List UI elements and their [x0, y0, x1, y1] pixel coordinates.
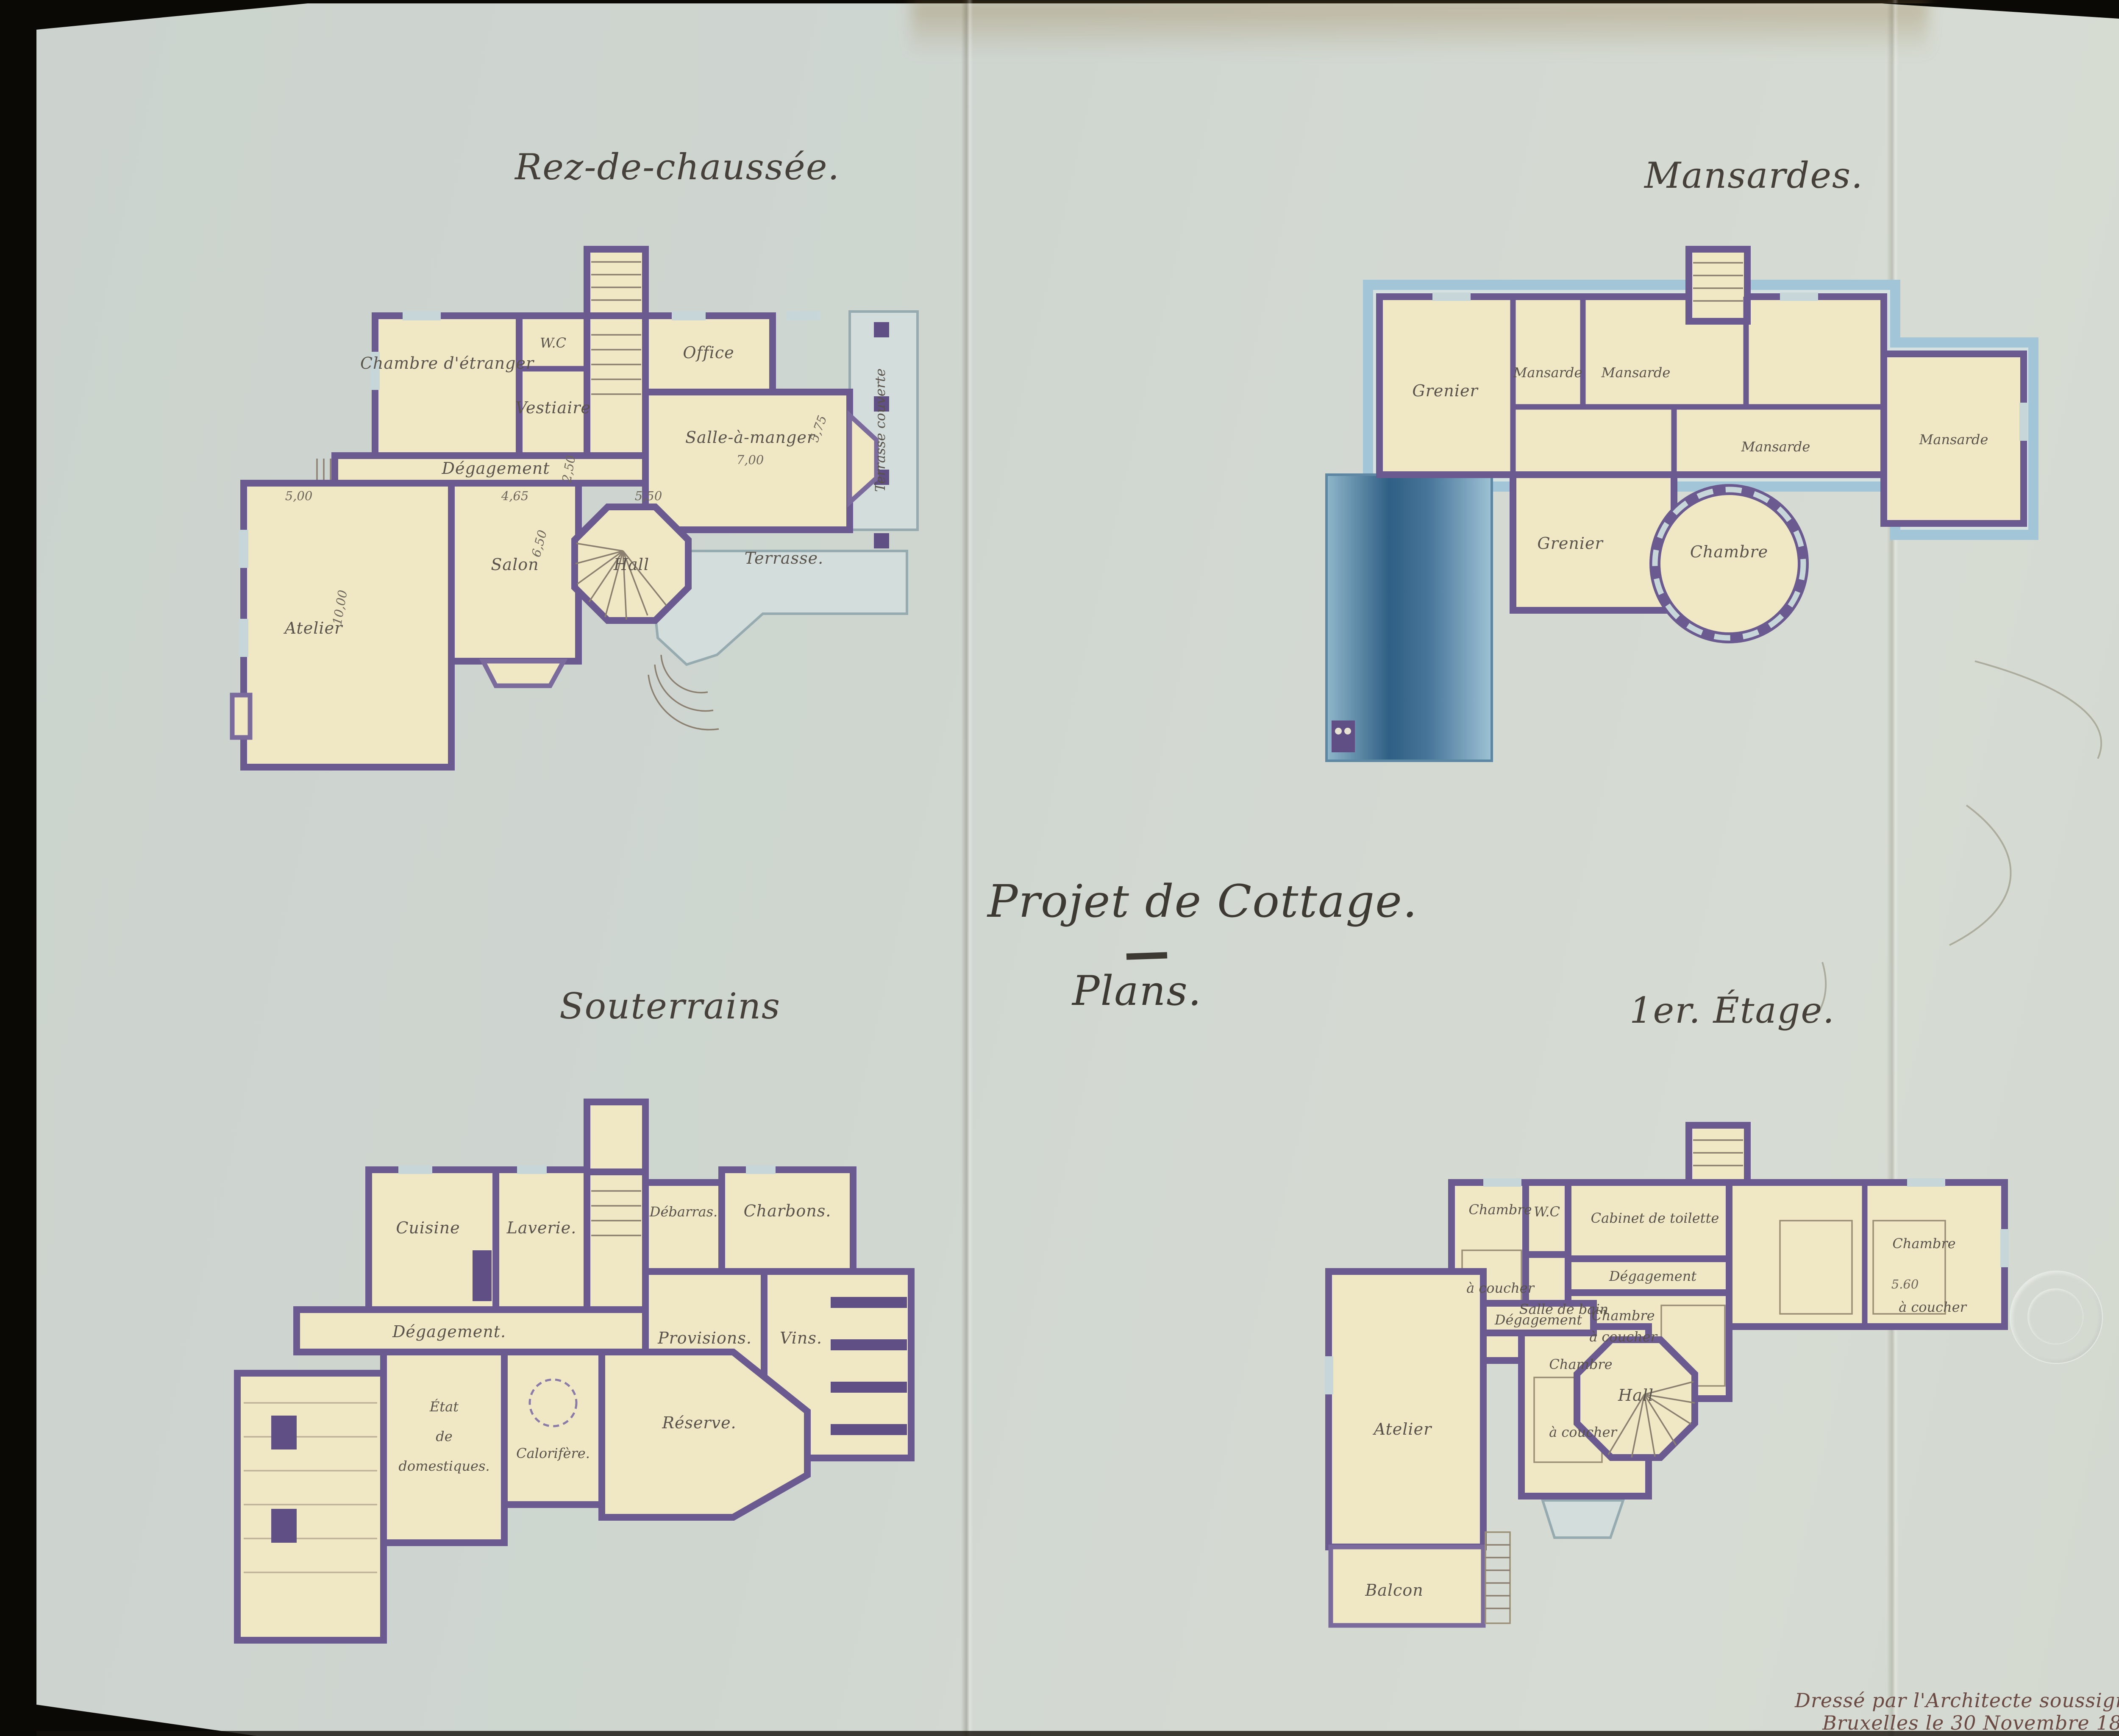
label-hall: Hall	[613, 555, 649, 574]
label-wc-etage: W.C	[1534, 1204, 1560, 1220]
label-chambre-d1b: à coucher	[1589, 1329, 1658, 1345]
label-degagement-b: Dégagement	[1494, 1312, 1582, 1328]
label-chambre-tour: Chambre	[1690, 542, 1768, 561]
sout-stair-tower	[587, 1102, 645, 1172]
label-balcon: Balcon	[1365, 1581, 1423, 1600]
label-terrasse-couverte: Terrasse couverte	[872, 368, 888, 492]
page-title: Projet de Cottage.	[987, 875, 1418, 927]
plan-title-rez-de-chaussee: Rez-de-chaussée.	[515, 146, 840, 188]
label-reserve: Réserve.	[662, 1413, 736, 1432]
rez-stairwell	[587, 316, 645, 456]
rez-atelier-bay	[232, 695, 250, 737]
label-etat-2: de	[436, 1428, 452, 1444]
label-debarras: Débarras.	[649, 1204, 717, 1220]
label-grenier-1: Grenier	[1412, 381, 1479, 400]
label-chambre-g: Chambre	[1468, 1202, 1532, 1218]
label-chambre-g2: à coucher	[1466, 1280, 1535, 1296]
plan-title-premier-etage: 1er. Étage.	[1630, 990, 1835, 1031]
room-charbons	[722, 1170, 853, 1271]
label-cabinet-toilette: Cabinet de toilette	[1591, 1210, 1719, 1226]
label-vins: Vins.	[780, 1329, 822, 1347]
mansardes-stair-tower	[1689, 249, 1747, 321]
dim-hall: 5,50	[635, 489, 662, 503]
label-charbons: Charbons.	[744, 1202, 831, 1220]
label-mansarde-3: Mansarde	[1741, 439, 1810, 455]
rez-salon-bay	[483, 661, 564, 686]
label-chambre-etranger: Chambre d'étranger	[360, 354, 535, 373]
plan-souterrains-drawing: Cuisine Laverie. Débarras. Charbons. Dég…	[220, 1085, 949, 1670]
sout-left-cellar	[237, 1373, 384, 1640]
rez-stair-tower	[587, 249, 645, 319]
room-calorifere	[504, 1352, 602, 1505]
label-chambre-c: Chambre	[1549, 1356, 1612, 1372]
dim-salle: 7,00	[737, 453, 764, 467]
label-mansarde-2: Mansarde	[1601, 364, 1671, 381]
label-atelier-etage: Atelier	[1373, 1420, 1432, 1438]
label-salon: Salon	[491, 555, 539, 574]
plan-title-souterrains: Souterrains	[559, 985, 781, 1027]
room-etat-domestiques	[384, 1352, 504, 1543]
label-mansarde-1: Mansarde	[1513, 364, 1582, 381]
signature-line-1: Dressé par l'Architecte soussigné	[1795, 1689, 2119, 1712]
dim-atelier-w: 5,00	[285, 489, 313, 503]
mansardes-lower-roof	[1326, 475, 1492, 761]
label-etat-3: domestiques.	[398, 1458, 489, 1474]
plan-mansardes-drawing: Grenier Mansarde Mansarde Mansarde Mansa…	[1310, 237, 2047, 780]
room-atelier	[244, 483, 451, 767]
page-subtitle: Plans.	[1072, 967, 1202, 1015]
label-cuisine: Cuisine	[396, 1219, 460, 1237]
room-chambre-etranger	[375, 316, 519, 456]
label-hall-etage: Hall	[1618, 1386, 1654, 1405]
label-vestiaire: Vestiaire	[515, 398, 591, 417]
label-chambre-d2: Chambre	[1892, 1235, 1955, 1252]
label-wc: W.C	[540, 335, 566, 351]
label-salle-a-manger: Salle-à-manger	[685, 428, 816, 447]
label-provisions: Provisions.	[657, 1329, 752, 1347]
label-etat-1: État	[429, 1399, 459, 1415]
plan-rez-de-chaussee-drawing: Chambre d'étranger W.C Vestiaire Office …	[229, 237, 932, 780]
embossed-seal-inner	[2027, 1288, 2083, 1344]
label-chambre-cb: à coucher	[1549, 1424, 1618, 1440]
label-chambre-d1: Chambre	[1591, 1308, 1655, 1324]
label-calorifere: Calorifère.	[516, 1445, 590, 1461]
label-degagement-sout: Dégagement.	[392, 1322, 506, 1341]
label-office: Office	[683, 343, 734, 362]
embossed-seal	[2010, 1271, 2103, 1364]
label-mansarde-4: Mansarde	[1919, 431, 1988, 448]
plan-premier-etage-drawing: Chambre à coucher W.C Salle de bain Cabi…	[1310, 1110, 2038, 1661]
label-degagement-h: Dégagement	[1609, 1268, 1696, 1284]
label-laverie: Laverie.	[506, 1219, 577, 1237]
plan-title-mansardes: Mansardes.	[1644, 155, 1863, 196]
room-atelier-etage	[1329, 1271, 1483, 1547]
dim-salon-w: 4,65	[501, 489, 529, 503]
signature-line-2: Bruxelles le 30 Novembre 1896.	[1822, 1711, 2119, 1734]
etage-bay-window	[1543, 1500, 1623, 1538]
label-terrasse: Terrasse.	[745, 549, 823, 568]
label-chambre-d2b: à coucher	[1899, 1299, 1967, 1315]
scanned-drawing-sheet: Rez-de-chaussée.	[0, 0, 2119, 1736]
label-degagement-rez: Dégagement	[441, 459, 550, 478]
room-debarras	[645, 1182, 722, 1271]
label-grenier-2: Grenier	[1537, 534, 1604, 553]
sout-stairwell	[587, 1172, 645, 1310]
dim-chambre-d2: 5.60	[1891, 1277, 1919, 1291]
